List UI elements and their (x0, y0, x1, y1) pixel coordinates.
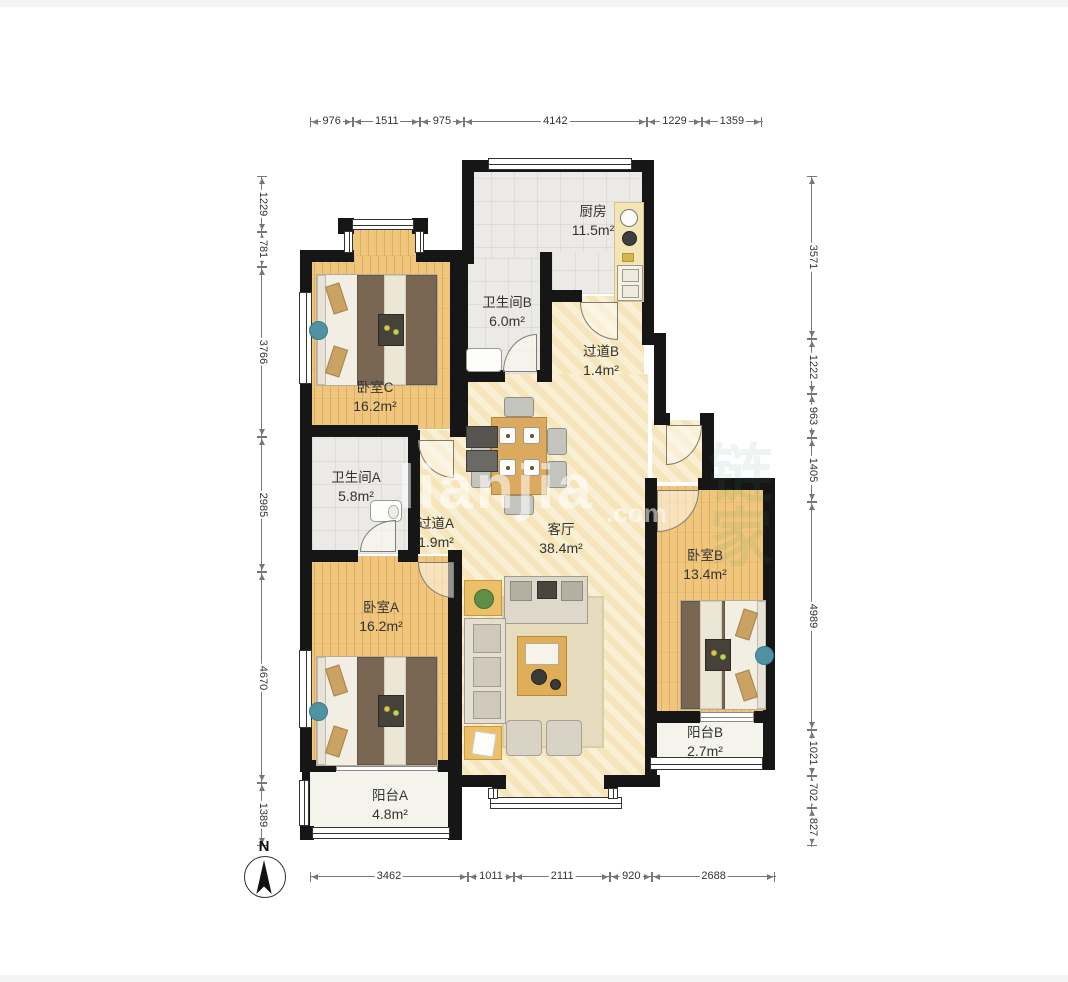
window-mullion (313, 833, 449, 834)
dim-segment: 4989 (807, 502, 817, 729)
dining-chair (547, 461, 567, 488)
north-indicator: N (238, 838, 290, 900)
wall-segment (300, 550, 358, 562)
dining-plate (523, 459, 540, 476)
window-mullion (353, 225, 413, 226)
dim-segment: 975 (420, 117, 463, 127)
sink-basin (622, 285, 639, 298)
dim-value: 781 (256, 238, 268, 260)
dim-value: 1359 (718, 116, 746, 128)
side-table (464, 580, 502, 616)
side-table (464, 726, 502, 760)
nightstand-dot (711, 650, 717, 656)
room-area: 11.5m² (572, 221, 615, 239)
window-bay-side (608, 788, 618, 799)
wall-segment (754, 711, 775, 723)
dim-value: 4670 (256, 663, 268, 691)
window-bay-side (488, 788, 498, 799)
dim-segment: 3571 (807, 176, 817, 339)
window-bay-side (344, 231, 353, 253)
dim-value: 975 (431, 116, 453, 128)
nightstand-dot (720, 654, 726, 660)
wall-segment (438, 760, 462, 772)
ottoman (506, 720, 542, 756)
room-label-kitchen: 厨房11.5m² (572, 203, 615, 239)
dim-segment: 702 (807, 776, 817, 808)
window-balcony-a-bottom (312, 827, 450, 839)
window-living-bay (490, 797, 622, 809)
dim-value: 1405 (806, 456, 818, 484)
kitchen-item (622, 253, 634, 262)
dim-arrowhead (809, 722, 815, 728)
sofa-armrest-table (537, 581, 557, 599)
sofa-cushion (473, 657, 501, 687)
room-name: 卧室A (359, 599, 403, 617)
nightstand-dot (384, 325, 390, 331)
wall-segment (448, 826, 462, 840)
dim-arrowhead (355, 119, 361, 125)
dim-value: 1222 (806, 352, 818, 380)
refrigerator (466, 450, 498, 472)
kitchen-sink (617, 265, 643, 301)
dim-arrowhead (259, 269, 265, 275)
dim-segment: 2985 (257, 437, 267, 572)
dim-value: 2688 (699, 871, 727, 883)
loveseat-sofa (504, 576, 588, 624)
dim-arrowhead (694, 119, 700, 125)
dim-arrowhead (259, 564, 265, 570)
room-name: 卧室B (683, 547, 727, 565)
dim-arrowhead (809, 494, 815, 500)
room-area: 5.8m² (331, 487, 381, 505)
dim-arrowhead (412, 119, 418, 125)
plant (474, 589, 494, 609)
window-mullion (491, 803, 621, 804)
dim-arrowhead (259, 224, 265, 230)
dim-arrowhead (506, 874, 512, 880)
dim-value: 1389 (256, 800, 268, 828)
dim-arrowhead (612, 874, 618, 880)
dim-value: 3462 (375, 871, 403, 883)
plate-dot (530, 434, 534, 438)
window-mullion (420, 232, 421, 252)
kitchen-counter (614, 202, 644, 302)
toilet-lid (388, 505, 399, 519)
cabinet (466, 426, 498, 448)
faucet (620, 209, 638, 227)
dim-segment: 781 (257, 232, 267, 267)
dim-segment: 1359 (702, 117, 762, 127)
dim-value: 1511 (373, 116, 401, 128)
window-bay-side (415, 231, 424, 253)
dim-segment: 1021 (807, 730, 817, 777)
dim-arrowhead (312, 874, 318, 880)
dim-arrowhead (809, 838, 815, 844)
room-area: 16.2m² (359, 617, 403, 635)
room-label-bathroom-a: 卫生间A5.8m² (331, 469, 381, 505)
dim-arrowhead (516, 874, 522, 880)
window-mullion (349, 232, 350, 252)
washbasin (466, 348, 502, 372)
dim-value: 4989 (806, 602, 818, 630)
dim-value: 1229 (256, 190, 268, 218)
bed (316, 656, 438, 766)
room-area: 6.0m² (482, 312, 532, 330)
dining-plate (499, 427, 516, 444)
dim-arrowhead (259, 785, 265, 791)
dim-value: 1011 (477, 871, 505, 883)
bed-pillow (325, 282, 348, 314)
bed-nightstand (705, 639, 731, 671)
wall-segment (654, 413, 670, 425)
plate-dot (506, 466, 510, 470)
dim-arrowhead (809, 768, 815, 774)
bedside-stool (309, 321, 328, 340)
room-area: 13.4m² (683, 565, 727, 583)
dim-arrowhead (809, 504, 815, 510)
room-area: 2.7m² (687, 742, 723, 760)
dim-segment: 976 (310, 117, 353, 127)
bed-pillow (735, 608, 758, 640)
dim-segment: 1511 (353, 117, 420, 127)
dim-arrowhead (460, 874, 466, 880)
dim-arrowhead (422, 119, 428, 125)
dim-value: 1229 (660, 116, 688, 128)
dim-value: 2985 (256, 490, 268, 518)
dim-arrowhead (809, 732, 815, 738)
room-area: 1.4m² (583, 361, 619, 379)
dim-arrowhead (259, 439, 265, 445)
bed-nightstand (378, 314, 404, 346)
bedside-stool (309, 702, 328, 721)
window-balcony-a-left (299, 780, 309, 826)
floor-bedroom-c-bay (352, 228, 416, 256)
dim-segment: 1229 (257, 176, 267, 232)
window-mullion (651, 764, 762, 765)
sofa-cushion (473, 624, 501, 653)
dim-arrowhead (809, 440, 815, 446)
window-mullion (701, 717, 753, 718)
window-mullion (613, 789, 614, 798)
room-label-bedroom-c: 卧室C16.2m² (353, 379, 397, 415)
dim-segment: 1222 (807, 339, 817, 395)
wall-segment (537, 370, 552, 382)
dim-arrowhead (649, 119, 655, 125)
room-label-balcony-a: 阳台A4.8m² (372, 787, 408, 823)
dim-arrowhead (809, 430, 815, 436)
bed (316, 274, 438, 386)
dim-arrowhead (654, 874, 660, 880)
dim-value: 976 (320, 116, 342, 128)
wall-segment (552, 290, 582, 302)
room-area: 1.9m² (418, 533, 454, 551)
room-name: 客厅 (539, 521, 583, 539)
ottoman (546, 720, 582, 756)
dim-value: 963 (806, 405, 818, 427)
dim-value: 4142 (541, 116, 569, 128)
wall-segment (645, 478, 657, 723)
dim-segment: 3766 (257, 267, 267, 437)
room-name: 过道A (418, 515, 454, 533)
dim-segment: 920 (610, 872, 652, 882)
dining-chair (504, 495, 534, 515)
sink-basin (622, 269, 639, 282)
wall-segment (462, 160, 474, 264)
dim-segment: 4142 (464, 117, 648, 127)
dim-value: 920 (620, 871, 642, 883)
dim-arrowhead (639, 119, 645, 125)
room-label-bedroom-b: 卧室B13.4m² (683, 547, 727, 583)
dim-segment: 827 (807, 808, 817, 846)
dim-arrowhead (345, 119, 351, 125)
dim-arrowhead (809, 341, 815, 347)
sofa-cushion (561, 581, 583, 601)
room-area: 4.8m² (372, 805, 408, 823)
dim-segment: 2111 (514, 872, 610, 882)
dim-arrowhead (602, 874, 608, 880)
dim-arrowhead (470, 874, 476, 880)
room-area: 16.2m² (353, 397, 397, 415)
window-kitchen-top (488, 158, 632, 170)
wall-segment (492, 775, 506, 789)
room-label-bathroom-b: 卫生间B6.0m² (482, 294, 532, 330)
dim-arrowhead (259, 574, 265, 580)
room-name: 卫生间B (482, 294, 532, 312)
bed-nightstand (378, 695, 404, 727)
window-mullion (306, 293, 307, 383)
dim-arrowhead (809, 396, 815, 402)
wall-segment (540, 252, 552, 382)
room-name: 卧室C (353, 379, 397, 397)
bed-pillow (325, 345, 348, 377)
dining-chair (504, 397, 534, 417)
room-label-bedroom-a: 卧室A16.2m² (359, 599, 403, 635)
wall-segment (604, 775, 618, 789)
dim-segment: 1389 (257, 783, 267, 846)
dim-segment: 963 (807, 394, 817, 438)
dim-segment: 1229 (647, 117, 702, 127)
dim-arrowhead (456, 119, 462, 125)
wall-segment (450, 258, 468, 437)
plate-dot (530, 466, 534, 470)
dim-arrowhead (466, 119, 472, 125)
dining-plate (523, 427, 540, 444)
window-mullion (489, 164, 631, 165)
tray (525, 643, 559, 665)
dim-segment: 1011 (468, 872, 514, 882)
room-name: 厨房 (572, 203, 615, 221)
dim-segment: 1405 (807, 438, 817, 502)
dim-arrowhead (644, 874, 650, 880)
dim-arrowhead (312, 119, 318, 125)
sofa-cushion (473, 691, 501, 719)
dim-arrowhead (704, 119, 710, 125)
dim-arrowhead (259, 775, 265, 781)
dim-arrowhead (809, 386, 815, 392)
dim-segment: 2688 (652, 872, 775, 882)
dim-arrowhead (809, 331, 815, 337)
bed-pillow (325, 725, 348, 757)
cup (550, 679, 561, 690)
dining-chair (547, 428, 567, 455)
dim-segment: 3462 (310, 872, 468, 882)
paper (471, 730, 496, 757)
dim-value: 827 (806, 816, 818, 838)
window-bedroom-c-left (299, 292, 312, 384)
bed (680, 600, 766, 710)
window-mullion (493, 789, 494, 798)
bed-pillow (735, 669, 758, 701)
wall-segment (654, 333, 666, 425)
room-label-living-room: 客厅38.4m² (539, 521, 583, 557)
dim-value: 702 (806, 781, 818, 803)
dim-arrowhead (809, 178, 815, 184)
sliding-door-balcony-b (700, 712, 754, 722)
room-label-hallway-b: 过道B1.4m² (583, 343, 619, 379)
teapot (531, 669, 547, 685)
dim-segment: 4670 (257, 572, 267, 783)
room-area: 38.4m² (539, 539, 583, 557)
window-mullion (306, 651, 307, 727)
floor-living-bay (497, 779, 615, 799)
stove-burner (622, 231, 637, 246)
dim-arrowhead (259, 429, 265, 435)
nightstand-dot (384, 706, 390, 712)
room-label-hallway-a: 过道A1.9m² (418, 515, 454, 551)
room-name: 卫生间A (331, 469, 381, 487)
wall-segment (300, 425, 418, 437)
room-label-balcony-b: 阳台B2.7m² (687, 724, 723, 760)
long-sofa (464, 618, 506, 724)
room-name: 阳台A (372, 787, 408, 805)
room-name: 阳台B (687, 724, 723, 742)
dim-value: 1021 (806, 739, 818, 767)
dim-arrowhead (259, 178, 265, 184)
dim-value: 2111 (549, 871, 576, 883)
dim-value: 3571 (806, 243, 818, 271)
dining-plate (499, 459, 516, 476)
nightstand-dot (393, 329, 399, 335)
dim-arrowhead (767, 874, 773, 880)
window-mullion (304, 781, 305, 825)
floorplan-canvas: 厨房11.5m²卫生间B6.0m²过道B1.4m²卧室C16.2m²卫生间A5.… (0, 0, 1068, 982)
floorplan-page: { "floorplan": { "north_label": "N", "wa… (0, 0, 1068, 982)
room-name: 过道B (583, 343, 619, 361)
coffee-table (517, 636, 567, 696)
window-bedroom-c-bay (352, 219, 414, 230)
sofa-cushion (510, 581, 532, 601)
north-label: N (238, 838, 290, 855)
bed-pillow (325, 664, 348, 696)
dim-arrowhead (754, 119, 760, 125)
plate-dot (506, 434, 510, 438)
bedside-stool (755, 646, 774, 665)
nightstand-dot (393, 710, 399, 716)
dim-value: 3766 (256, 338, 268, 366)
